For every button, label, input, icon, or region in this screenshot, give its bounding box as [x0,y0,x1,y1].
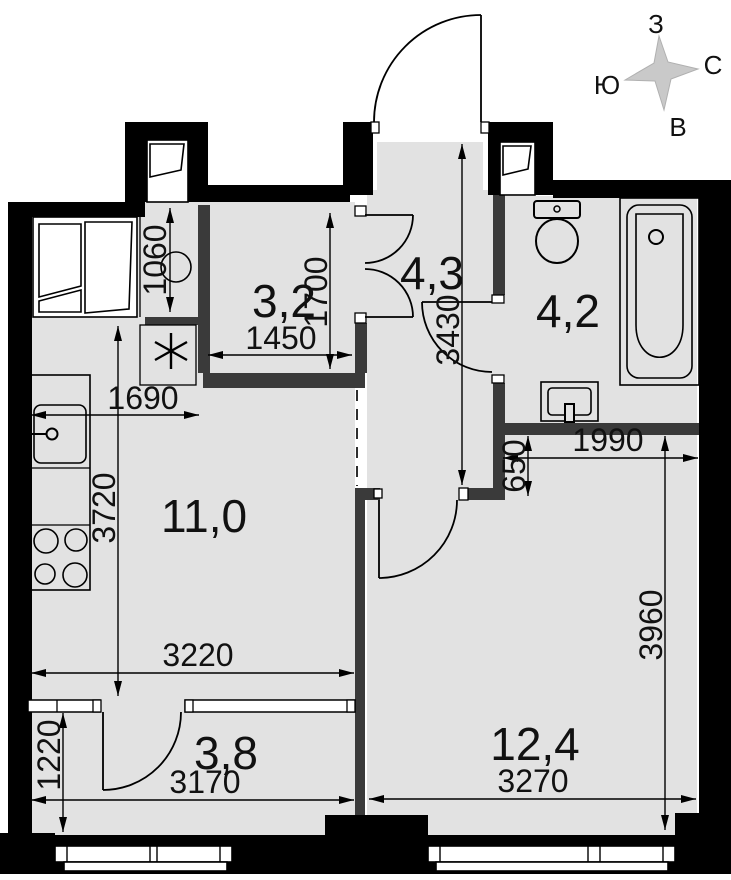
kitchen-window [33,217,140,317]
compass-rose: З С Ю В [594,9,723,142]
niche-window-left [147,140,188,202]
toilet [534,201,580,263]
room-label-bathroom: 4,2 [536,285,600,337]
dim-kitchen-width: 3220 [162,637,233,673]
stud-wall-left [28,700,100,712]
dim-kitchen-length: 3720 [86,472,122,543]
compass-label-south: Ю [594,70,620,100]
floor-plan-svg: 1060 1450 1700 3430 1690 3720 3220 1220 … [0,0,731,880]
compass-star-icon [625,36,698,110]
dim-alcove-width: 1990 [572,422,643,458]
dim-hallway-length: 3430 [430,294,466,365]
compass-label-north: С [704,50,723,80]
entry-door [374,15,481,122]
dim-alcove-depth: 650 [496,439,532,492]
wardrobe-window [55,846,232,871]
compass-label-west: З [648,9,664,39]
room-label-kitchen-living: 11,0 [161,490,247,542]
room-label-living-room: 12,4 [490,718,580,770]
living-room-window [428,846,675,871]
dim-wardrobe-depth: 1220 [31,719,67,790]
room-label-wardrobe: 3,8 [194,727,258,779]
stud-wall-right [185,700,355,712]
compass-label-east: В [669,112,686,142]
dim-living-length: 3960 [633,589,669,660]
room-label-hallway: 4,3 [400,247,464,299]
niche-window-right [500,142,535,195]
dim-kitchen-wall: 1690 [107,380,178,416]
dim-bay-depth: 1060 [137,224,173,295]
floor-plan-page: 1060 1450 1700 3430 1690 3720 3220 1220 … [0,0,731,880]
room-label-storage: 3,2 [252,275,316,327]
